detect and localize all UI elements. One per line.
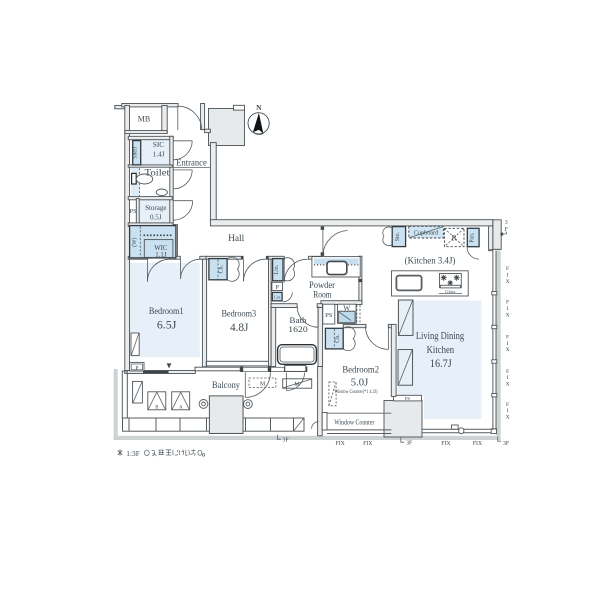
svg-text:0.5J: 0.5J — [150, 213, 162, 221]
svg-text:3F: 3F — [503, 441, 510, 447]
svg-text:Ch.: Ch. — [335, 334, 341, 343]
svg-text:FIX: FIX — [336, 441, 346, 447]
svg-text:N: N — [256, 103, 262, 112]
svg-text:M: M — [260, 382, 266, 388]
svg-text:PS: PS — [325, 312, 333, 319]
svg-text:1.1J: 1.1J — [155, 252, 166, 259]
svg-text:3: 3 — [505, 220, 508, 226]
svg-text:W: W — [343, 304, 351, 313]
svg-text:(Kitchen 3.4J): (Kitchen 3.4J) — [405, 256, 456, 267]
svg-text:Toilet: Toilet — [145, 167, 170, 178]
svg-text:6.5J: 6.5J — [157, 319, 177, 331]
svg-text:Balcony: Balcony — [212, 381, 240, 391]
svg-text:M: M — [294, 382, 300, 388]
svg-text:Hall: Hall — [228, 233, 244, 244]
svg-text:(W): (W) — [131, 237, 138, 246]
svg-text:Lin: Lin — [274, 295, 281, 300]
svg-text:1.4J: 1.4J — [153, 150, 165, 158]
svg-text:3F: 3F — [406, 441, 413, 447]
svg-text:5.0J: 5.0J — [351, 377, 369, 389]
svg-text:4.8J: 4.8J — [230, 322, 249, 334]
svg-text:Bedroom2: Bedroom2 — [342, 364, 379, 375]
svg-text:PS: PS — [130, 208, 138, 215]
svg-text:R: R — [452, 234, 458, 243]
svg-text:FIX: FIX — [441, 441, 451, 447]
svg-text:Window Counter(*1 4.2J): Window Counter(*1 4.2J) — [335, 388, 378, 395]
svg-text:P: P — [135, 366, 138, 372]
svg-text:Room: Room — [313, 290, 332, 300]
svg-text:Glass: Glass — [445, 289, 455, 294]
svg-text:Kitchen: Kitchen — [427, 345, 455, 356]
svg-text:MB: MB — [138, 115, 150, 124]
svg-text:Bedroom1: Bedroom1 — [149, 306, 184, 317]
svg-text:SIC: SIC — [153, 141, 164, 149]
svg-text:Living Dining: Living Dining — [416, 331, 464, 342]
svg-text:Sto.: Sto. — [395, 231, 401, 241]
svg-text:B: B — [155, 405, 158, 410]
svg-text:Window Counter: Window Counter — [334, 418, 375, 426]
svg-text:Lin.: Lin. — [274, 264, 280, 274]
svg-text:A: A — [179, 405, 183, 410]
svg-text:FIX: FIX — [473, 441, 483, 447]
svg-text:Shelf: Shelf — [132, 146, 139, 158]
svg-text:Bedroom3: Bedroom3 — [221, 309, 256, 320]
svg-text:1620: 1620 — [288, 325, 307, 334]
svg-text:16.7J: 16.7J — [430, 356, 452, 370]
svg-text:Cupboard: Cupboard — [414, 229, 439, 236]
svg-text:P: P — [275, 284, 279, 291]
svg-text:Entrance: Entrance — [176, 157, 207, 168]
svg-text:1:3F: 1:3F — [126, 449, 140, 458]
svg-text:FIX: FIX — [363, 441, 373, 447]
svg-text:PS: PS — [405, 396, 411, 401]
svg-text:WIC: WIC — [154, 245, 168, 252]
svg-text:3F: 3F — [283, 438, 290, 444]
svg-text:Ch.: Ch. — [219, 264, 225, 273]
svg-text:Storage: Storage — [145, 204, 166, 212]
svg-text:Bath: Bath — [289, 316, 307, 325]
svg-text:Pan.: Pan. — [469, 232, 475, 243]
